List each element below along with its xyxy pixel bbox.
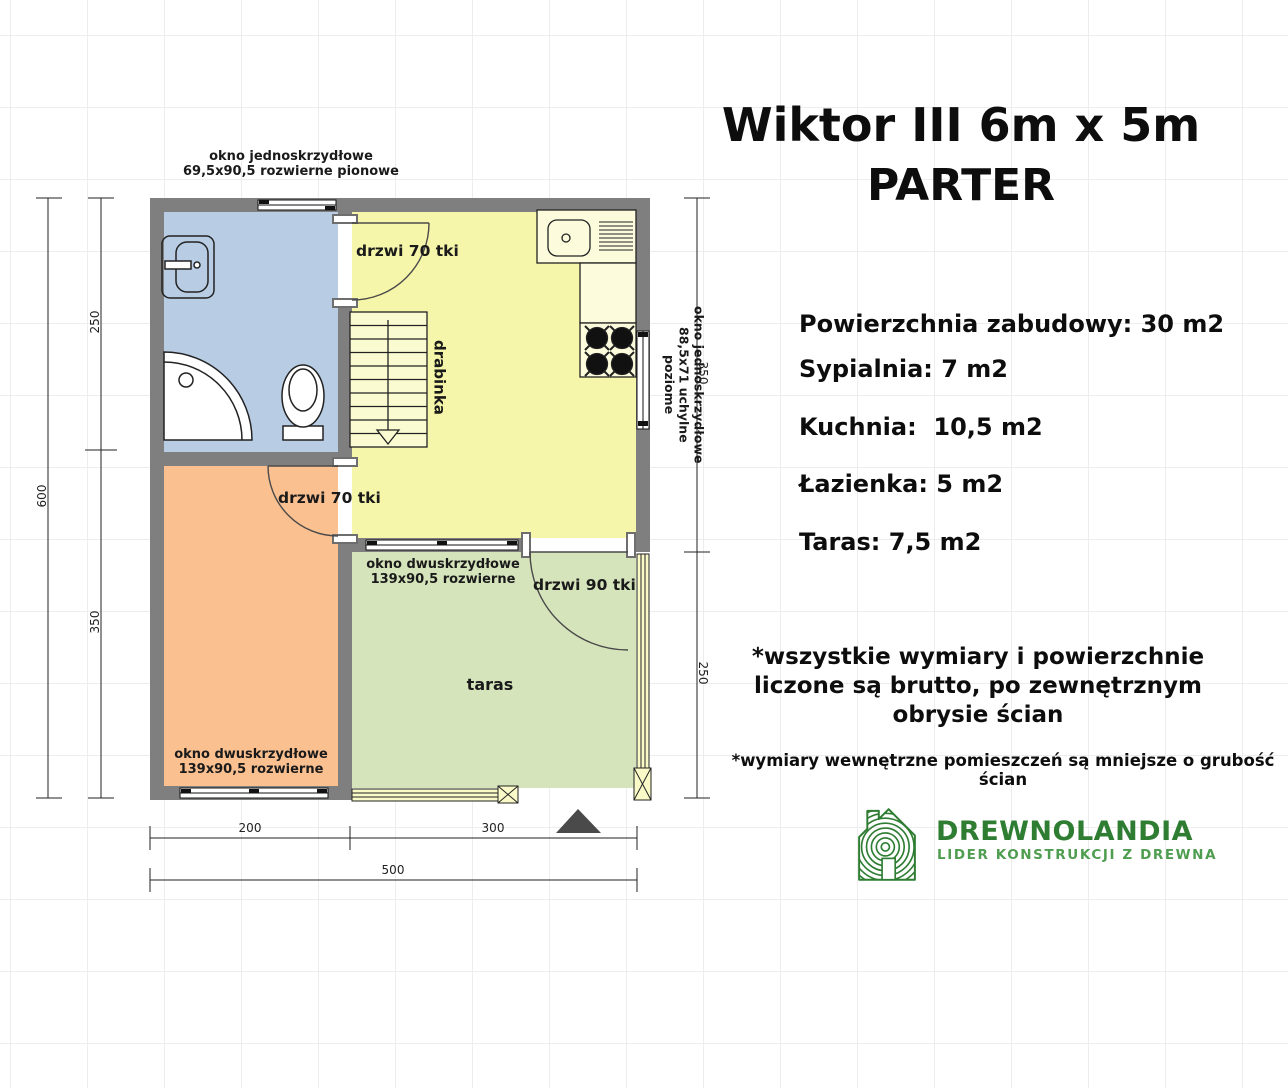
window-kitchen-terrace (366, 540, 518, 550)
kitchen-counter (537, 210, 636, 323)
spec-bathroom: Łazienka: 5 m2 (799, 470, 1003, 498)
bathroom-door-arc (352, 223, 429, 300)
dim-right-top: 350 (696, 353, 710, 393)
bedroom-door-label: drzwi 70 tki (278, 489, 381, 507)
wall-bath-bedroom (164, 452, 338, 466)
window-right-wall (637, 331, 649, 429)
top-window-label: okno jednoskrzydłowe 69,5x90,5 rozwierne… (166, 149, 416, 180)
toilet (282, 365, 324, 440)
spec-terrace: Taras: 7,5 m2 (799, 528, 981, 556)
spec-kitchen: Kuchnia: 10,5 m2 (799, 413, 1043, 441)
terrace-railing-bottom (352, 786, 518, 803)
walls (150, 198, 650, 800)
dim-bottom-right: 300 (453, 821, 533, 835)
terrace-door-arc (530, 552, 628, 650)
dim-left-total: 600 (35, 476, 49, 516)
window-top (258, 200, 336, 210)
stove (580, 323, 636, 377)
page-title-line1: Wiktor III 6m x 5m (706, 98, 1216, 152)
spec-building-area: Powierzchnia zabudowy: 30 m2 (799, 310, 1224, 338)
shower (164, 352, 252, 440)
terrace-railing-right (634, 554, 651, 800)
dim-bottom-total: 500 (353, 863, 433, 877)
note-main-line2: liczone są brutto, po zewnętrznym (723, 673, 1233, 699)
bathroom-sink (162, 236, 214, 298)
ladder-stairs (350, 312, 427, 447)
bedroom-window-label: okno dwuskrzydłowe 139x90,5 rozwierne (151, 747, 351, 778)
spec-bedroom: Sypialnia: 7 m2 (799, 355, 1008, 383)
ladder-label: drabinka (430, 340, 448, 422)
page-title-line2: PARTER (706, 160, 1216, 211)
terrace-window-label: okno dwuskrzydłowe 139x90,5 rozwierne (343, 557, 543, 588)
kitchen-door-label: drzwi 70 tki (356, 242, 459, 260)
logo-tagline: LIDER KONSTRUKCJI Z DREWNA (937, 847, 1217, 863)
note-main-line1: *wszystkie wymiary i powierzchnie (723, 644, 1233, 670)
dim-left-top: 250 (88, 302, 102, 342)
entrance-arrow (556, 809, 601, 833)
dim-left-bottom: 350 (88, 602, 102, 642)
logo-name: DREWNOLANDIA (936, 816, 1193, 847)
terrace-door-label: drzwi 90 tki (533, 576, 636, 594)
dim-bottom-left: 200 (210, 821, 290, 835)
logo-house-icon (846, 799, 928, 885)
dim-right-bottom: 250 (696, 653, 710, 693)
note-secondary: *wymiary wewnętrzne pomieszczeń są mniej… (723, 751, 1283, 789)
floor-plan-page: okno jednoskrzydłowe 69,5x90,5 rozwierne… (0, 0, 1288, 1088)
terrace-room-label: taras (440, 676, 540, 695)
note-main-line3: obrysie ścian (723, 702, 1233, 728)
window-bedroom-bottom (180, 788, 328, 798)
